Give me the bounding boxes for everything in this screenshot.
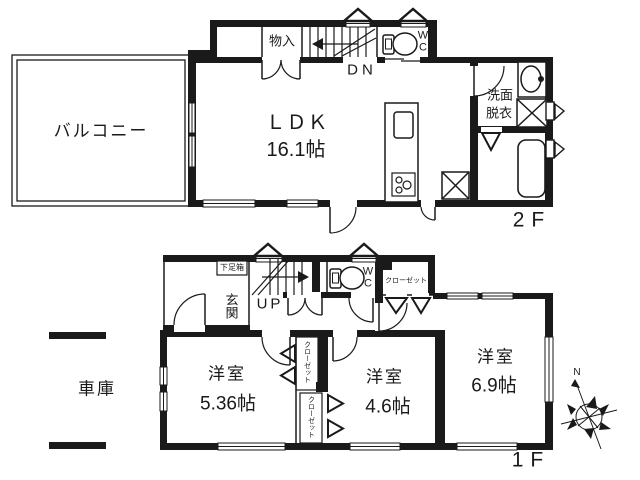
washroom-label-line2: 脱衣 <box>486 107 512 120</box>
bedroom2-door <box>333 337 357 361</box>
stairs-up-label: UP <box>257 297 284 312</box>
entrance-label: 玄関 <box>225 293 238 319</box>
shoebox-label: 下足箱 <box>220 264 244 272</box>
ldk-door <box>330 207 356 233</box>
ldk-label: ＬＤＫ <box>266 113 329 133</box>
stairs-1f <box>252 258 309 295</box>
bathtub-icon <box>518 140 545 197</box>
washing-machine-icon <box>517 99 547 127</box>
stove-icon <box>392 173 415 196</box>
closet-b-label: クローゼット <box>308 396 315 438</box>
floor1-label: 1F <box>512 450 551 471</box>
refrigerator-icon <box>442 172 469 199</box>
wc-label-2f-w: W <box>418 31 428 42</box>
ldk-size-label: 16.1帖 <box>267 140 326 160</box>
bath-folding-door-icon <box>481 127 502 150</box>
compass-north-label: N <box>573 368 580 378</box>
garage-label: 車庫 <box>78 381 116 398</box>
closet-a-label: クローゼット <box>304 341 311 383</box>
floor-plan-drawing <box>0 0 640 480</box>
kitchen-side-door <box>421 207 435 220</box>
stairs-dn-label: DN <box>347 63 377 78</box>
sink-icon <box>394 112 413 138</box>
washbasin-icon <box>518 62 546 97</box>
entrance-door <box>174 294 205 325</box>
balcony-label: バルコニー <box>54 123 149 140</box>
bedroom3-size-label: 6.9帖 <box>471 377 516 396</box>
toilet-icon-2f <box>383 33 417 55</box>
vent-triangle-icon <box>340 9 431 21</box>
toilet-icon-1f <box>330 267 364 289</box>
bedroom3-label: 洋室 <box>477 349 515 366</box>
floor2-label: 2F <box>513 210 552 231</box>
storage-label: 物入 <box>269 35 295 48</box>
bedroom1-label: 洋室 <box>208 366 246 383</box>
compass-icon <box>561 379 617 449</box>
bedroom2-size-label: 4.6帖 <box>365 398 410 417</box>
stairs-2f <box>310 27 376 57</box>
bedroom1-size-label: 5.36帖 <box>200 395 256 414</box>
wc-label-1f-c: C <box>364 279 372 290</box>
wc-label-2f-c: C <box>419 43 427 54</box>
floor-plan: バルコニー ＬＤＫ 16.1帖 物入 DN W C 洗面 脱衣 2F 下足箱 玄… <box>0 0 640 480</box>
washroom-label-line1: 洗面 <box>487 89 513 102</box>
kitchen-counter <box>385 103 418 202</box>
wc-label-1f-w: W <box>363 267 373 278</box>
wc-door-1f <box>349 298 373 322</box>
understairs-double-door <box>288 298 322 315</box>
closet-top-label: クローゼット <box>385 278 427 285</box>
bedroom2-label: 洋室 <box>366 369 404 386</box>
vent-triangle-icon <box>250 244 382 256</box>
